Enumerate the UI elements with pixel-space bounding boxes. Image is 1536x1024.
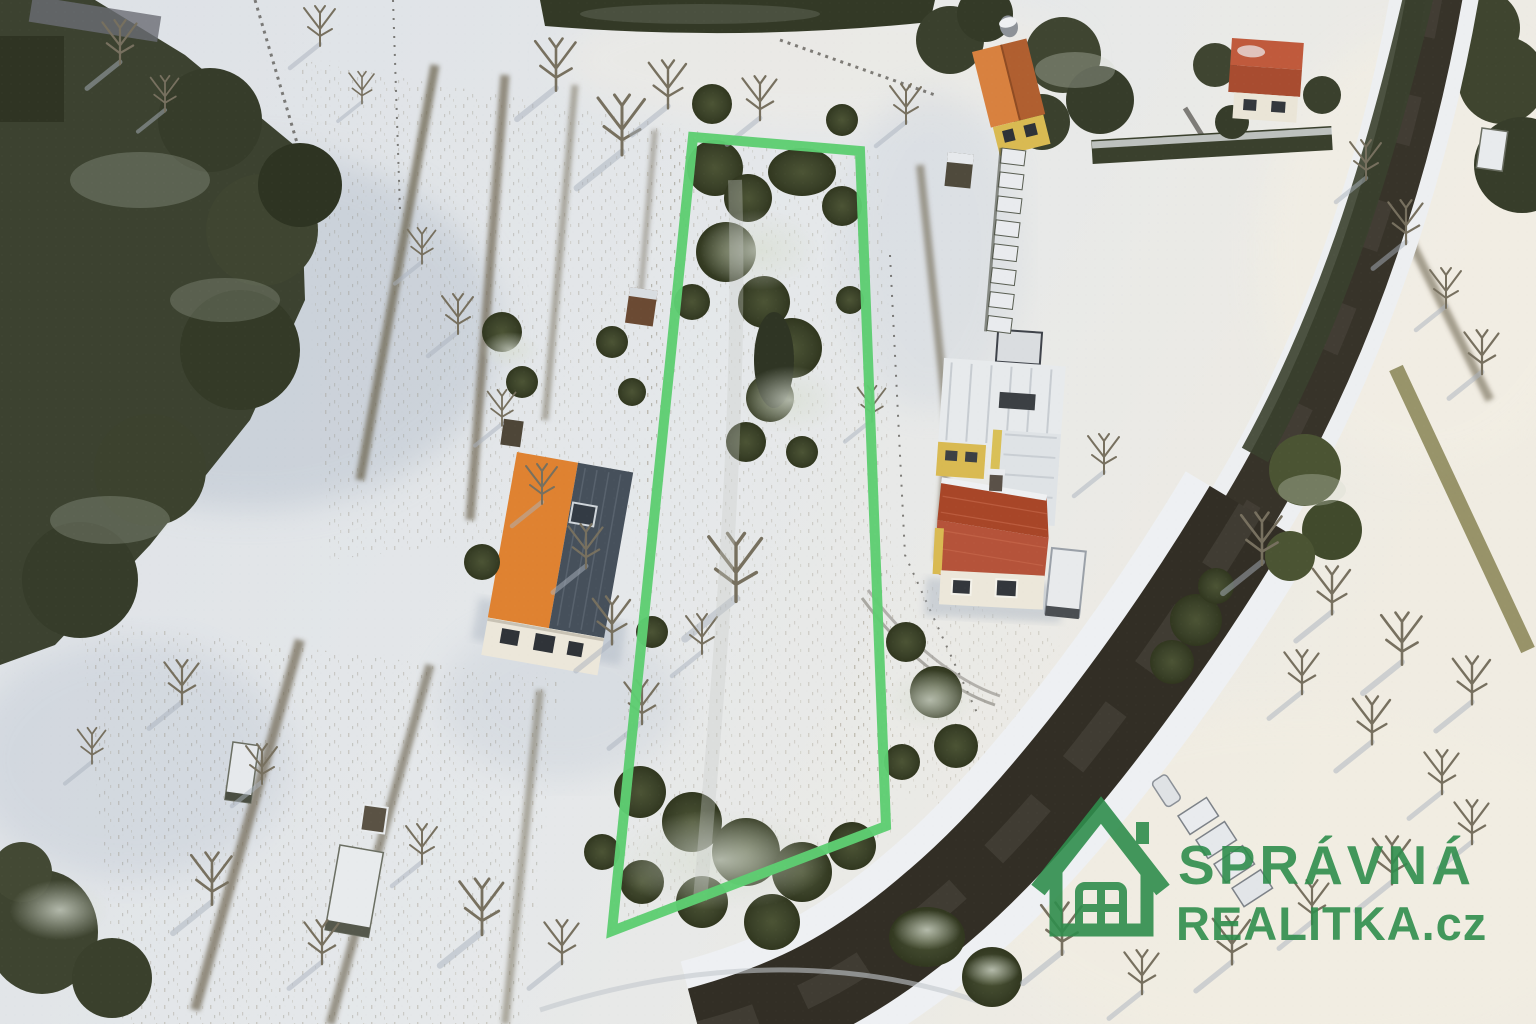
watermark-line1: SPRÁVNÁ xyxy=(1178,834,1475,896)
watermark-line2: REALITKA.cz xyxy=(1176,897,1487,950)
aerial-photo: SPRÁVNÁ REALITKA.cz xyxy=(0,0,1536,1024)
